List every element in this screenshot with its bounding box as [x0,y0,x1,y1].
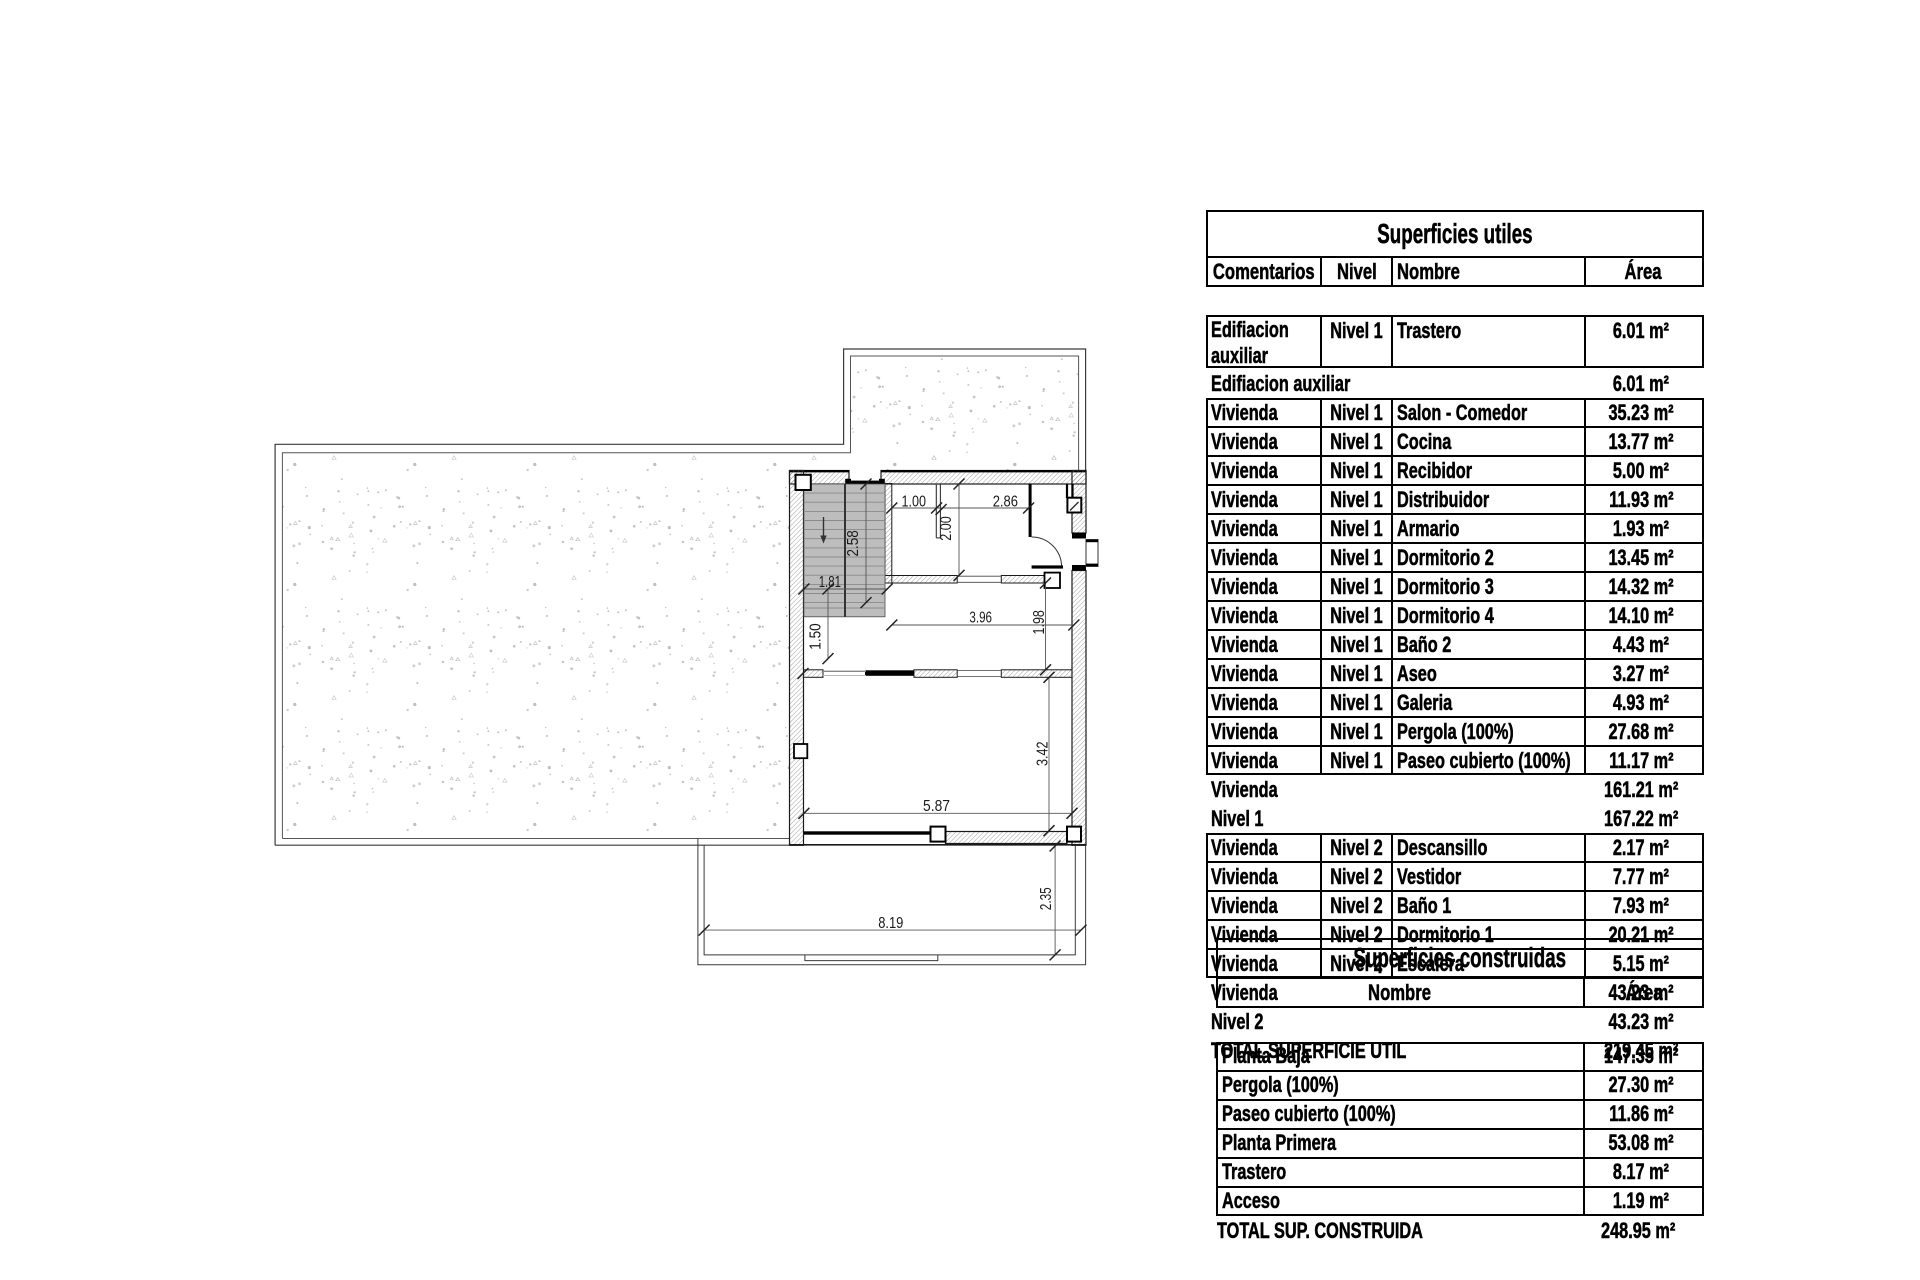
svg-text:1.81: 1.81 [819,574,841,591]
svg-text:1.00: 1.00 [902,493,927,510]
svg-text:2.00: 2.00 [938,516,955,541]
svg-text:2.58: 2.58 [845,530,862,556]
svg-text:2.35: 2.35 [1038,887,1055,910]
svg-text:8.19: 8.19 [878,915,903,932]
svg-text:1.50: 1.50 [808,623,825,650]
svg-text:1.98: 1.98 [1031,610,1048,634]
svg-text:5.87: 5.87 [923,798,950,815]
svg-text:2.86: 2.86 [993,493,1018,510]
svg-text:3.42: 3.42 [1035,742,1052,767]
svg-text:3.96: 3.96 [969,610,992,627]
